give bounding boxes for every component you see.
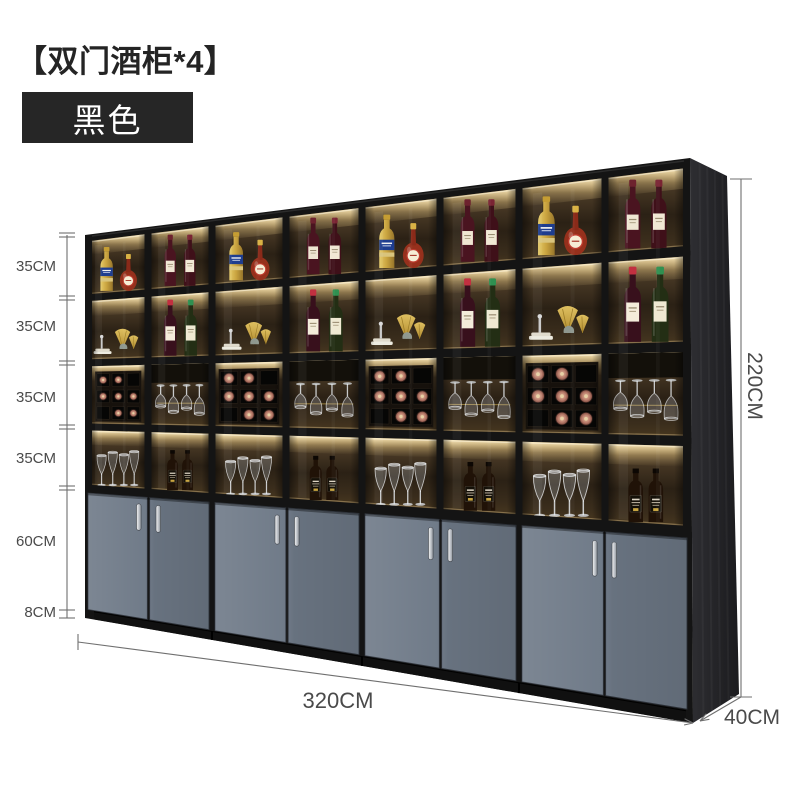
left-dim-label-3: 35CM [0, 449, 56, 469]
product-title: 【双门酒柜*4】 [16, 36, 235, 81]
left-dim-label-5: 8CM [0, 603, 56, 623]
color-badge: 黑色 [22, 92, 193, 143]
product-dimension-diagram: 【双门酒柜*4】 黑色 35CM35CM35CM35CM60CM8CM 220C… [0, 0, 800, 800]
color-badge-label: 黑色 [73, 94, 143, 142]
width-dimension-label: 320CM [278, 688, 398, 714]
left-dim-label-0: 35CM [0, 257, 56, 277]
left-dim-label-2: 35CM [0, 388, 56, 408]
height-dimension-label: 220CM [744, 344, 766, 428]
left-dim-label-4: 60CM [0, 532, 56, 552]
left-dim-label-1: 35CM [0, 317, 56, 337]
depth-dimension-label: 40CM [712, 706, 792, 730]
